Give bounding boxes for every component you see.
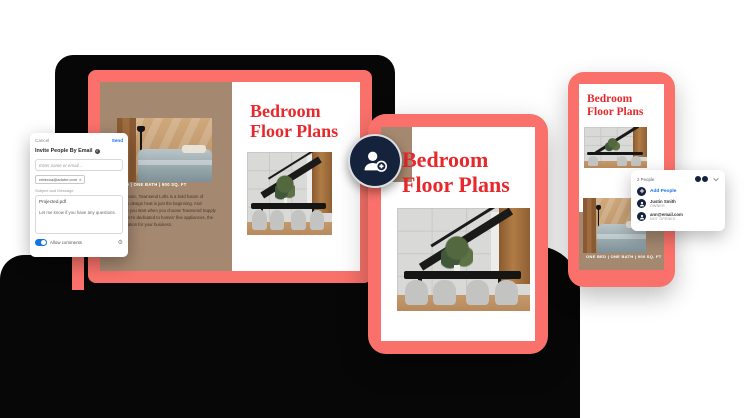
title-line: Bedroom bbox=[587, 93, 643, 106]
people-count: 2 People bbox=[637, 177, 654, 182]
member-info: Justin Smith OWNER bbox=[650, 199, 676, 208]
people-popup-header: 2 People bbox=[637, 175, 719, 183]
photo-detail bbox=[466, 280, 489, 305]
body-line: porary design heat is just the beginning… bbox=[117, 200, 219, 207]
message-box[interactable]: Projected.pdf Let me know if you have an… bbox=[35, 195, 123, 234]
info-icon[interactable]: i bbox=[95, 149, 100, 154]
photo-detail bbox=[405, 280, 428, 305]
title-line: Bedroom bbox=[250, 101, 338, 121]
member-row[interactable]: Justin Smith OWNER bbox=[637, 199, 719, 208]
add-person-icon bbox=[361, 147, 389, 175]
member-row[interactable]: ann@email.com NOT OPENED bbox=[637, 212, 719, 221]
allow-comments-toggle[interactable] bbox=[35, 239, 47, 246]
photo-detail bbox=[310, 210, 324, 230]
modal-header: Cancel Send bbox=[35, 138, 123, 143]
laptop-screen: ONE BED | ONE BATH | 900 SQ. FT and icon… bbox=[88, 70, 372, 283]
people-avatars[interactable] bbox=[694, 175, 719, 183]
chevron-down-icon[interactable] bbox=[713, 177, 719, 182]
send-button[interactable]: Send bbox=[112, 138, 123, 143]
body-line: foundation for your business. bbox=[117, 221, 219, 228]
toggle-knob bbox=[41, 240, 46, 245]
photo-detail bbox=[495, 280, 518, 305]
photo-detail bbox=[138, 160, 212, 166]
body-line: and iconic, Townsend Lofts is a bold fus… bbox=[117, 193, 219, 200]
dining-photo bbox=[397, 208, 530, 311]
allow-comments-row: Allow comments bbox=[35, 239, 82, 246]
message-value: Let me know if you have any questions. bbox=[39, 210, 119, 215]
add-person-badge[interactable] bbox=[348, 134, 402, 188]
member-info: ann@email.com NOT OPENED bbox=[650, 212, 683, 221]
photo-detail bbox=[617, 156, 628, 166]
chip-remove-icon[interactable]: × bbox=[79, 177, 81, 182]
photo-detail bbox=[597, 234, 646, 239]
document-title: Bedroom Floor Plans bbox=[250, 101, 338, 141]
member-status: OWNER bbox=[650, 204, 676, 208]
body-line: where you start when you choose Townsend… bbox=[117, 207, 219, 214]
photo-detail bbox=[270, 210, 284, 230]
hero-stage: ONE BED | ONE BATH | 900 SQ. FT and icon… bbox=[0, 0, 750, 418]
title-line: Floor Plans bbox=[250, 121, 338, 141]
allow-comments-label: Allow comments bbox=[50, 240, 82, 245]
document-title: Bedroom Floor Plans bbox=[587, 93, 643, 119]
avatar bbox=[701, 175, 709, 183]
photo-detail bbox=[588, 156, 599, 166]
document-title: Bedroom Floor Plans bbox=[402, 147, 510, 197]
photo-detail bbox=[182, 145, 207, 153]
photo-detail bbox=[605, 138, 620, 153]
person-icon bbox=[637, 199, 646, 208]
photo-detail bbox=[583, 198, 596, 253]
modal-title-text: Invite People By Email bbox=[35, 148, 93, 154]
photo-detail bbox=[587, 152, 642, 155]
bedroom-photo bbox=[117, 118, 212, 182]
recipient-chip[interactable]: rebecca@adobe.com × bbox=[35, 175, 85, 184]
invite-modal: Cancel Send Invite People By Email i reb… bbox=[30, 133, 128, 257]
person-icon bbox=[637, 212, 646, 221]
add-people-row[interactable]: Add People bbox=[637, 187, 719, 196]
document-page-right: Bedroom Floor Plans bbox=[232, 82, 360, 271]
title-line: Floor Plans bbox=[402, 172, 510, 197]
member-status: NOT OPENED bbox=[650, 217, 683, 221]
add-people-label: Add People bbox=[650, 189, 676, 194]
plus-icon bbox=[637, 187, 646, 196]
photo-detail bbox=[252, 210, 266, 230]
subject-message-label: Subject and Message bbox=[35, 188, 123, 193]
subject-value: Projected.pdf bbox=[39, 199, 119, 204]
unit-caption: ONE BED | ONE BATH | 900 SQ. FT bbox=[586, 254, 661, 259]
photo-detail bbox=[631, 156, 642, 166]
people-popup: 2 People Add People bbox=[631, 170, 725, 231]
document-spread: ONE BED | ONE BATH | 900 SQ. FT and icon… bbox=[100, 82, 360, 271]
photo-detail bbox=[433, 280, 456, 305]
photo-detail bbox=[291, 210, 305, 230]
title-line: Floor Plans bbox=[587, 106, 643, 119]
recipient-chip-label: rebecca@adobe.com bbox=[39, 177, 77, 182]
cancel-button[interactable]: Cancel bbox=[35, 138, 49, 143]
gear-icon[interactable]: ⚙ bbox=[118, 240, 123, 246]
dining-photo bbox=[247, 152, 332, 235]
recipient-input[interactable] bbox=[35, 159, 123, 171]
tablet-page: Bedroom Floor Plans bbox=[381, 127, 535, 341]
body-copy: and iconic, Townsend Lofts is a bold fus… bbox=[117, 193, 219, 228]
title-line: Bedroom bbox=[402, 147, 510, 172]
dining-photo bbox=[584, 127, 647, 168]
modal-title: Invite People By Email i bbox=[35, 148, 123, 154]
modal-footer: Allow comments ⚙ bbox=[35, 239, 123, 246]
body-line: find we're dedicated to homes' fine appl… bbox=[117, 214, 219, 221]
